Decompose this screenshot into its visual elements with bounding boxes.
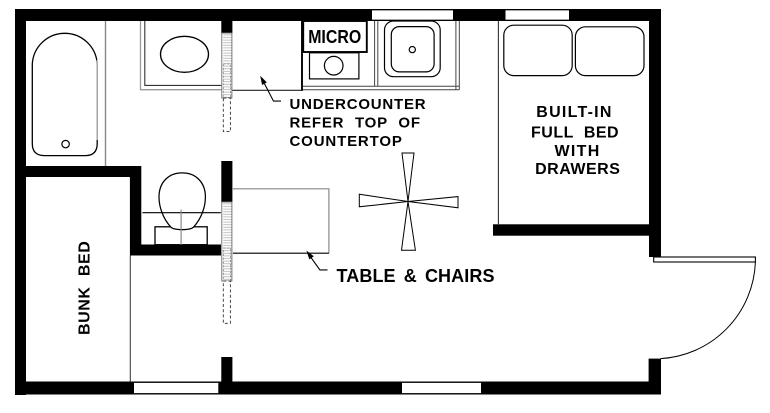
svg-text:WITH: WITH xyxy=(555,143,600,160)
svg-text:REFER TOP OF: REFER TOP OF xyxy=(290,114,421,131)
svg-text:MICRO: MICRO xyxy=(308,26,361,47)
svg-text:BUILT-IN: BUILT-IN xyxy=(536,104,611,121)
svg-text:COUNTERTOP: COUNTERTOP xyxy=(290,133,403,150)
svg-text:BUNK BED: BUNK BED xyxy=(76,241,93,335)
svg-text:DRAWERS: DRAWERS xyxy=(535,161,620,178)
svg-text:FULL BED: FULL BED xyxy=(531,124,619,141)
svg-text:UNDERCOUNTER: UNDERCOUNTER xyxy=(290,96,427,113)
svg-text:TABLE & CHAIRS: TABLE & CHAIRS xyxy=(337,266,495,286)
